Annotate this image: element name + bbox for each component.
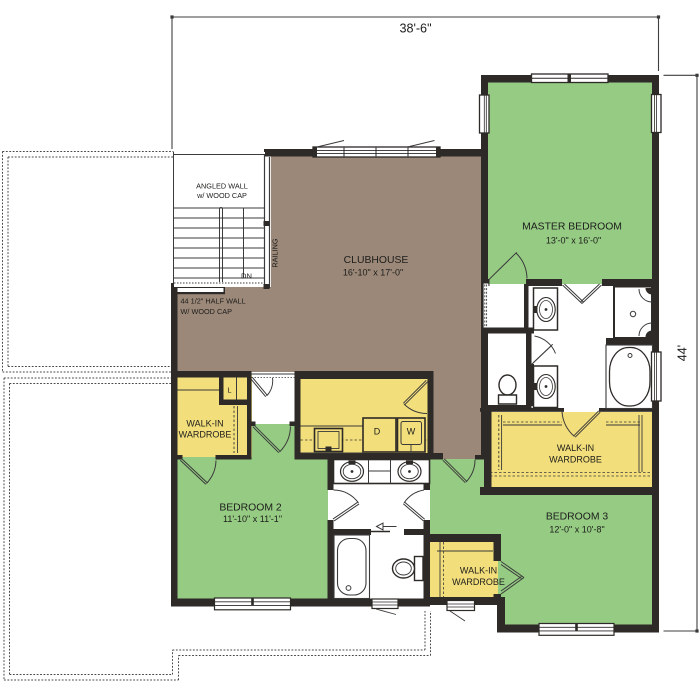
svg-text:12'-0" x 10'-8": 12'-0" x 10'-8" — [549, 525, 604, 535]
svg-text:WALK-IN: WALK-IN — [557, 443, 594, 453]
svg-text:11'-10" x 11'-1": 11'-10" x 11'-1" — [223, 514, 282, 524]
svg-text:WALK-IN: WALK-IN — [186, 419, 223, 429]
svg-text:44': 44' — [676, 345, 690, 361]
svg-text:ANGLED WALL: ANGLED WALL — [196, 182, 248, 191]
svg-text:RAILING: RAILING — [271, 238, 280, 268]
svg-text:WARDROBE: WARDROBE — [179, 430, 232, 440]
svg-text:44 1/2" HALF WALL: 44 1/2" HALF WALL — [181, 297, 246, 306]
svg-text:DN: DN — [241, 272, 252, 281]
svg-text:16'-10" x 17'-0": 16'-10" x 17'-0" — [343, 268, 403, 278]
svg-text:MASTER BEDROOM: MASTER BEDROOM — [522, 222, 622, 233]
svg-text:CLUBHOUSE: CLUBHOUSE — [344, 255, 409, 266]
svg-text:WARDROBE: WARDROBE — [452, 577, 505, 587]
svg-text:BEDROOM 2: BEDROOM 2 — [219, 503, 282, 514]
svg-text:13'-0" x 16'-0": 13'-0" x 16'-0" — [546, 236, 601, 246]
svg-text:w/ WOOD CAP: w/ WOOD CAP — [196, 191, 247, 200]
svg-text:L: L — [227, 386, 231, 395]
svg-text:D: D — [374, 427, 381, 437]
svg-text:W: W — [407, 427, 416, 437]
svg-text:WALK-IN: WALK-IN — [460, 566, 497, 576]
svg-text:W/ WOOD CAP: W/ WOOD CAP — [181, 307, 233, 316]
svg-text:BEDROOM 3: BEDROOM 3 — [546, 512, 609, 523]
svg-text:WARDROBE: WARDROBE — [549, 455, 602, 465]
svg-text:38'-6": 38'-6" — [399, 22, 431, 36]
